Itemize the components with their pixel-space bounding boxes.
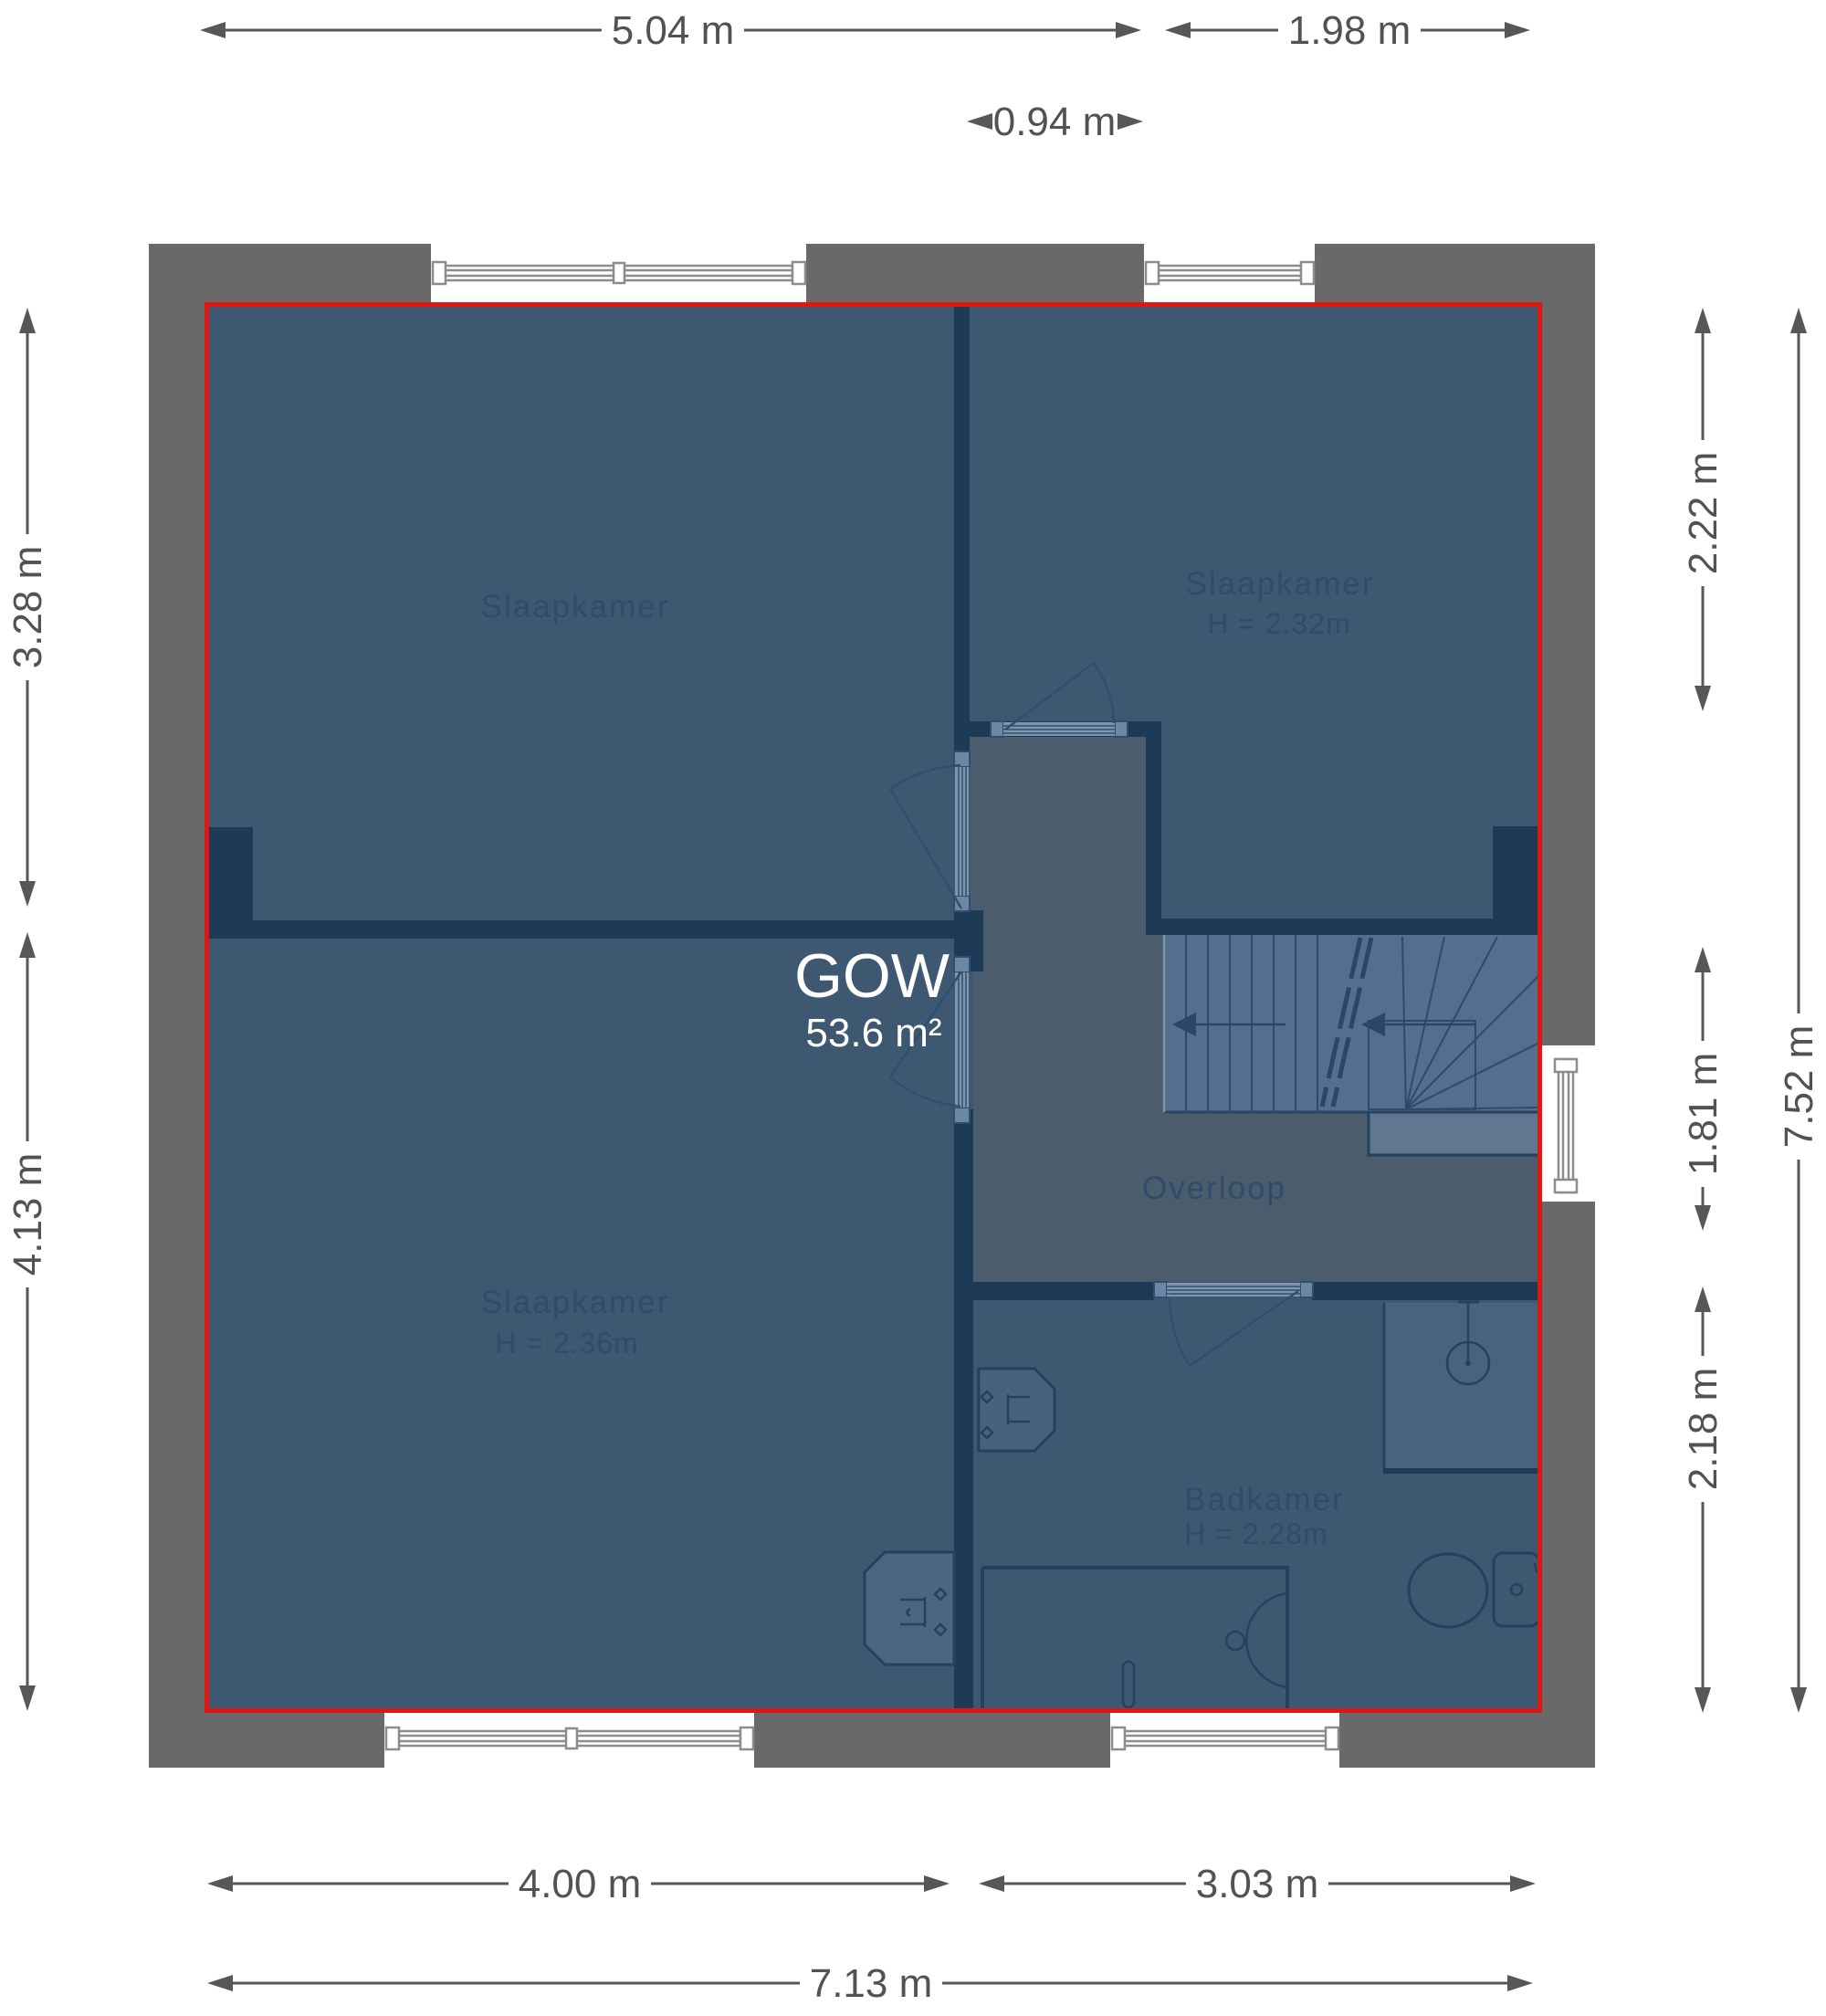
svg-text:Slaapkamer: Slaapkamer (481, 589, 670, 625)
svg-text:7.52 m: 7.52 m (1777, 1025, 1821, 1149)
svg-text:0.94 m: 0.94 m (993, 100, 1117, 144)
svg-text:4.13 m: 4.13 m (5, 1153, 50, 1276)
svg-text:3.03 m: 3.03 m (1196, 1862, 1319, 1906)
svg-text:2.18 m: 2.18 m (1681, 1368, 1726, 1491)
svg-text:3.28 m: 3.28 m (5, 546, 50, 669)
svg-text:4.00 m: 4.00 m (519, 1862, 642, 1906)
svg-text:H = 2.32m: H = 2.32m (1207, 607, 1351, 640)
svg-text:5.04 m: 5.04 m (612, 8, 735, 53)
svg-text:1.81 m: 1.81 m (1681, 1053, 1726, 1176)
svg-text:Slaapkamer: Slaapkamer (481, 1285, 670, 1320)
svg-text:Slaapkamer: Slaapkamer (1186, 566, 1375, 602)
svg-text:1.98 m: 1.98 m (1288, 8, 1411, 53)
svg-text:H = 2.36m: H = 2.36m (495, 1327, 639, 1360)
svg-text:7.13 m: 7.13 m (810, 1961, 933, 2006)
svg-text:Overloop: Overloop (1142, 1171, 1286, 1206)
svg-text:Badkamer: Badkamer (1184, 1482, 1345, 1517)
svg-text:2.22 m: 2.22 m (1681, 452, 1726, 575)
svg-text:53.6 m²: 53.6 m² (805, 1011, 941, 1055)
svg-text:H = 2.28m: H = 2.28m (1184, 1517, 1328, 1550)
svg-text:GOW: GOW (794, 941, 950, 1011)
